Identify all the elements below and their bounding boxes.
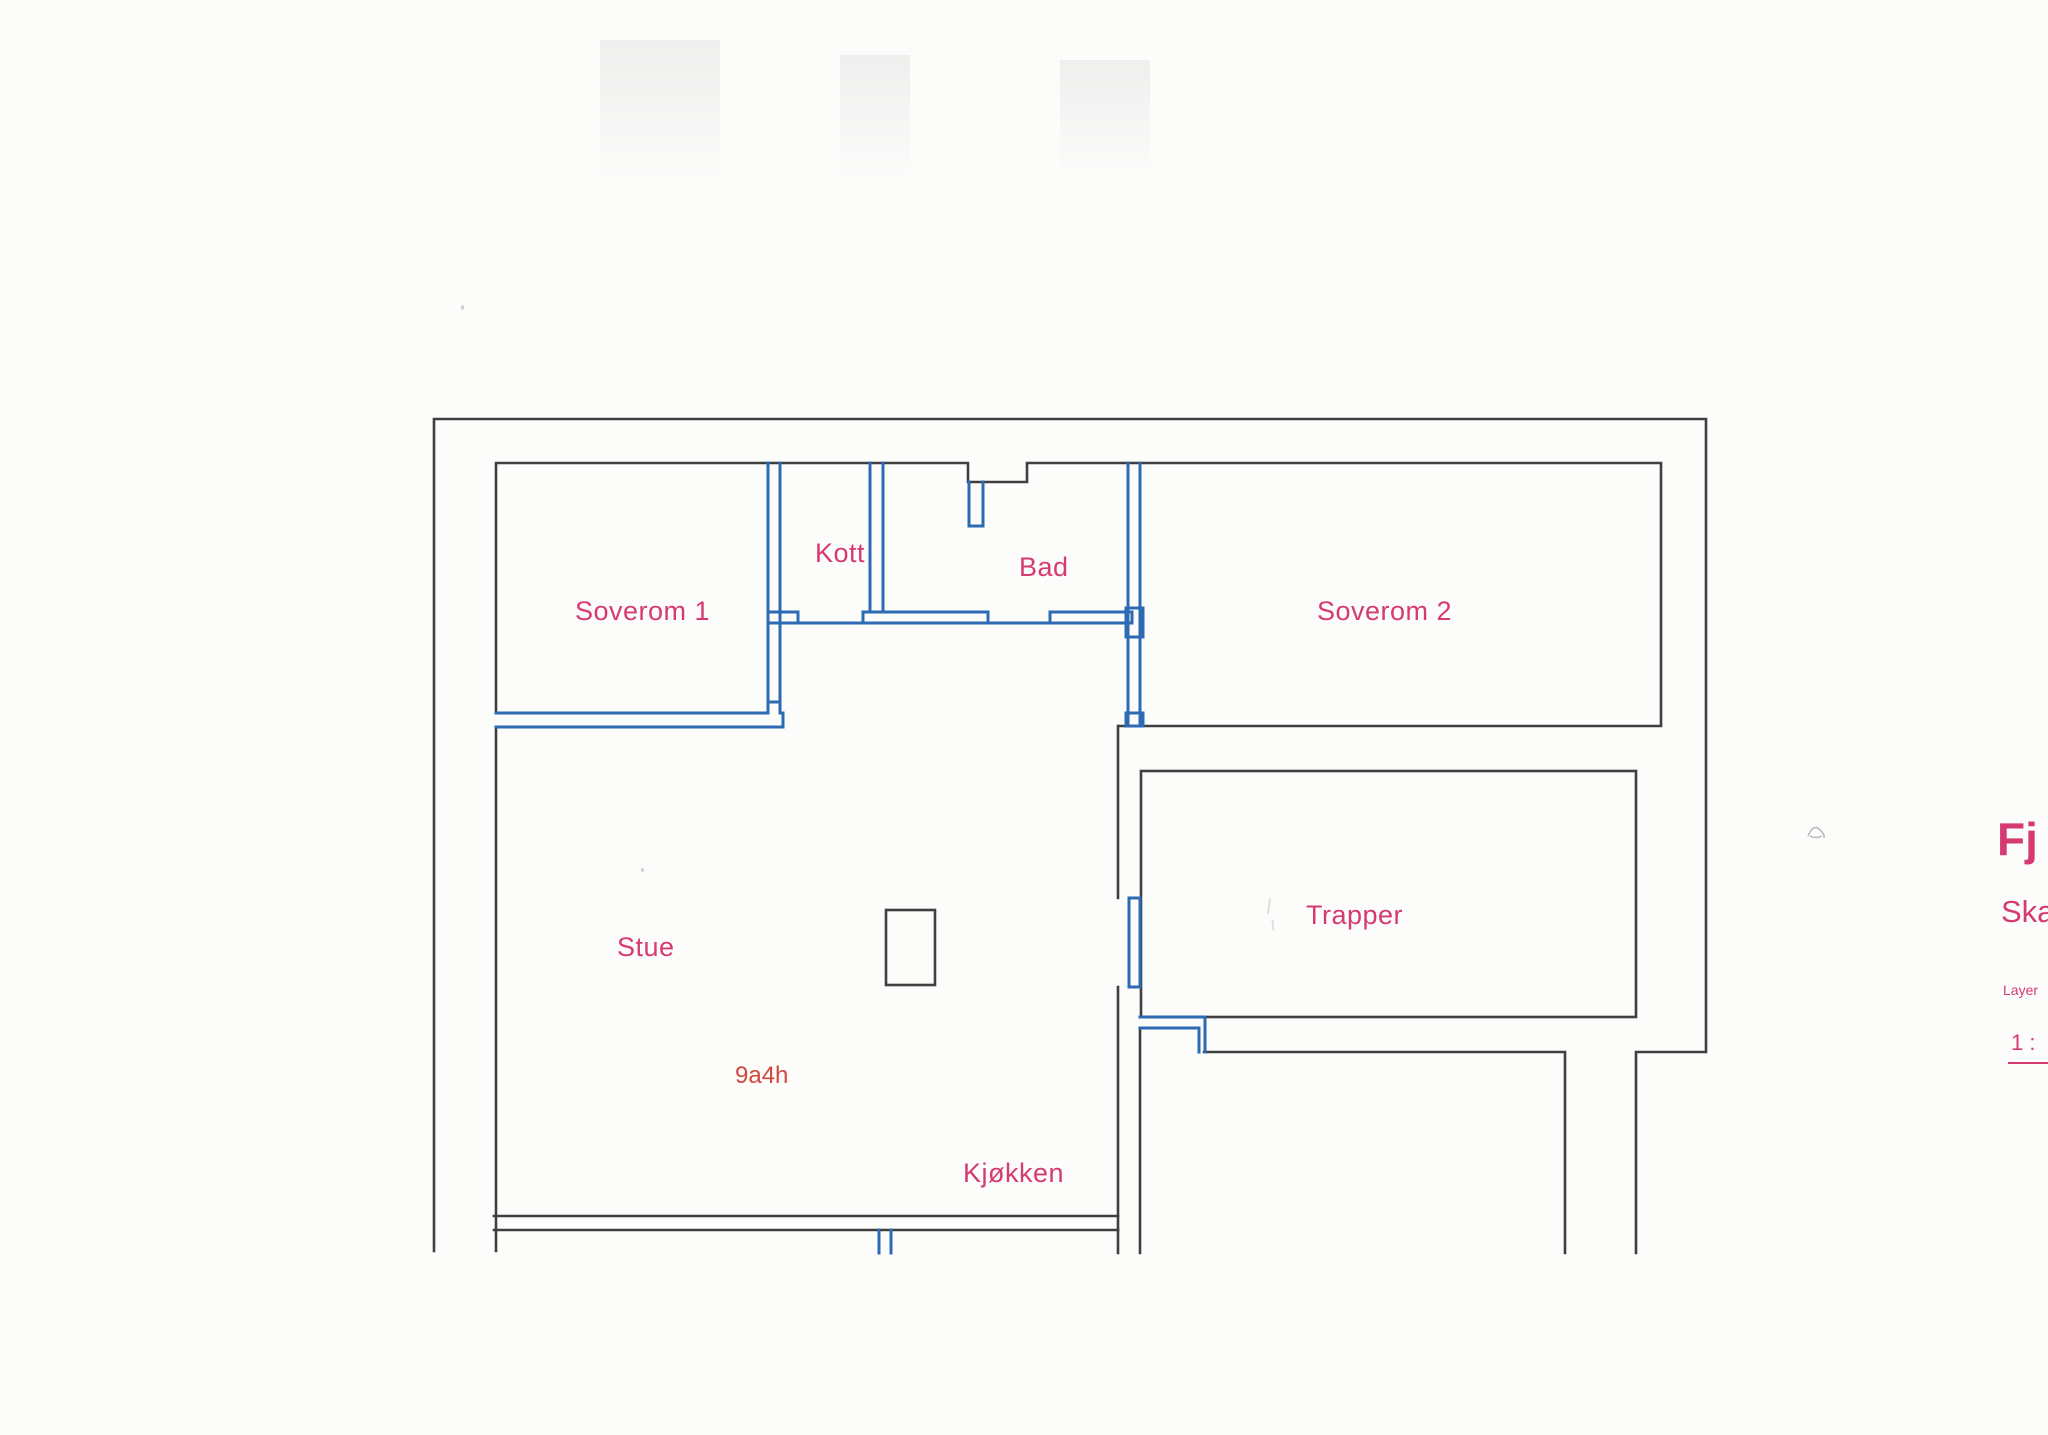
- room-label-bad: Bad: [1019, 552, 1069, 583]
- bath-top-stub-wall: [969, 482, 983, 526]
- room-label-soverom-2: Soverom 2: [1317, 596, 1452, 627]
- closet-bath-divider-wall: [870, 463, 883, 612]
- stair-step-wall: [1140, 1017, 1205, 1052]
- outer-boundary-wall: [434, 419, 1706, 1253]
- side-title-fragment: Fj: [1997, 812, 2038, 866]
- room-label-trapper: Trapper: [1306, 900, 1403, 931]
- bedroom1-bottom-wall: [496, 702, 783, 727]
- room-label-kott: Kott: [815, 538, 865, 569]
- area-code-annotation: 9a4h: [735, 1062, 788, 1090]
- closet-bath-bottom-wall: [768, 612, 1132, 623]
- scan-artifact-scribble: [1808, 828, 1824, 838]
- scanned-floor-plan-page: Soverom 1 Kott Bad Soverom 2 Stue Trappe…: [0, 0, 2048, 1435]
- lower-right-step-wall: [1204, 1052, 1565, 1253]
- stair-room-wall: [1141, 771, 1636, 1017]
- chimney-shaft: [886, 910, 935, 985]
- blue-partition-walls: [496, 463, 1205, 1253]
- room-label-kjokken: Kjøkken: [963, 1158, 1064, 1189]
- side-scale-ratio-fragment: 1 :: [2011, 1030, 2035, 1056]
- dark-walls: [434, 419, 1706, 1253]
- kitchen-bottom-stub-wall: [879, 1230, 891, 1253]
- side-scale-ratio-underline: [2008, 1062, 2048, 1064]
- floor-plan-drawing: [0, 0, 2048, 1435]
- bath-right-wall: [1128, 463, 1140, 726]
- side-layer-label-fragment: Layer: [2003, 982, 2038, 998]
- kitchen-bottom-wall: [494, 1216, 1118, 1230]
- upper-rooms-wall: [496, 463, 1661, 726]
- closet-left-wall: [768, 463, 780, 702]
- room-label-soverom-1: Soverom 1: [575, 596, 710, 627]
- side-scale-heading-fragment: Ska: [2001, 894, 2048, 930]
- hall-door-segment: [1129, 898, 1140, 987]
- room-label-stue: Stue: [617, 932, 675, 963]
